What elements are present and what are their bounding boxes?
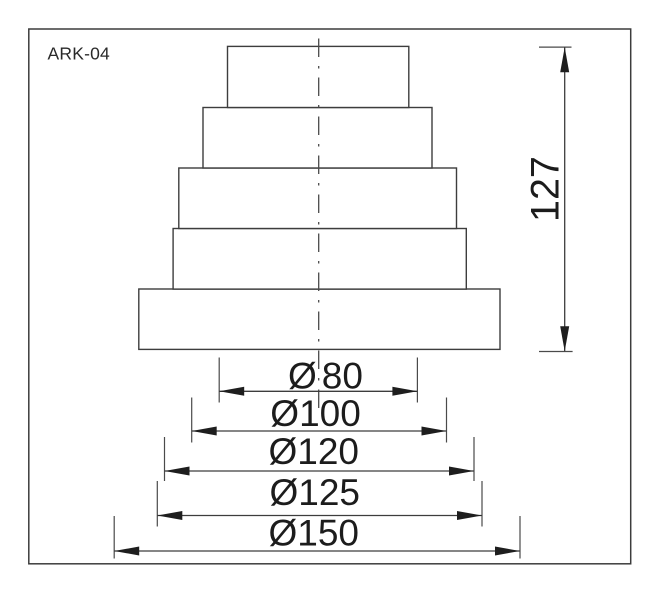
svg-text:ARK-04: ARK-04: [48, 44, 111, 64]
svg-text:127: 127: [524, 156, 568, 222]
svg-text:Ø150: Ø150: [269, 513, 360, 554]
svg-text:Ø80: Ø80: [288, 356, 363, 397]
svg-text:Ø120: Ø120: [269, 431, 360, 472]
svg-text:Ø125: Ø125: [270, 472, 361, 513]
svg-text:Ø100: Ø100: [270, 393, 361, 434]
